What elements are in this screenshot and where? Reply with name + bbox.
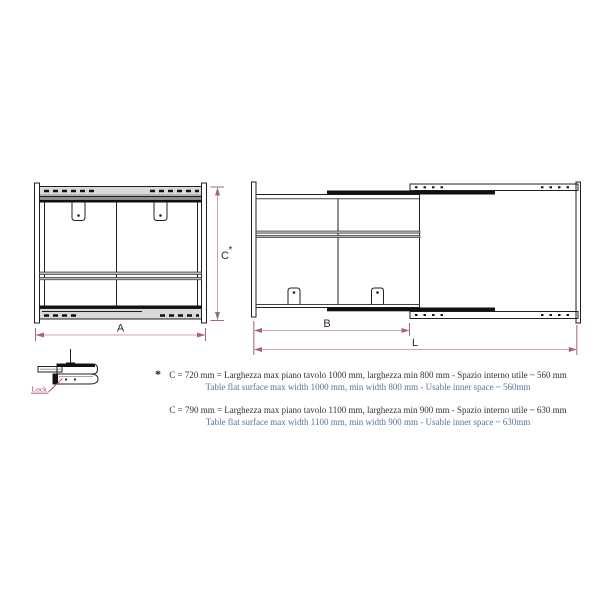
technical-drawing: A C * [0,0,600,600]
closed-left-end-bar [35,183,40,323]
closed-mount-bracket-left [72,203,85,221]
lock-lower-profile [53,374,98,384]
extended-middle-slide [327,186,495,312]
dim-label-B: B [323,318,330,330]
extended-mount-bracket-left [288,288,300,305]
extended-mount-bracket-right [372,288,384,305]
extended-outer-rail [410,182,581,323]
drawing-canvas: A C * [0,0,600,600]
dim-label-C-star: * [229,245,233,256]
lock-upper-profile [38,363,98,375]
dim-label-L: L [412,337,418,349]
closed-view: A C * [35,183,233,341]
dimension-L: L [254,325,577,355]
extended-inner-carriage [256,195,420,308]
closed-mount-bracket-right [154,203,167,221]
note-1-english: Table flat surface max width 1000 mm, mi… [150,381,586,393]
note-block-2: C = 790 mm = Larghezza max piano tavolo … [150,404,586,428]
extended-view: B L [252,182,581,355]
extended-left-end-bar [252,182,257,317]
dimension-C: C * [211,187,233,321]
note-1-italian: C = 720 mm = Larghezza max piano tavolo … [150,369,586,381]
closed-right-end-bar [202,183,207,323]
dimension-A: A [36,323,206,342]
note-2-italian: C = 790 mm = Larghezza max piano tavolo … [150,404,586,416]
note-block-1: C = 720 mm = Larghezza max piano tavolo … [150,369,586,393]
closed-inner-frame [40,203,202,306]
closed-bottom-rail [40,306,202,320]
lock-label: Lock [32,385,48,394]
lock-detail: Lock [31,349,98,394]
note-2-english: Table flat surface max width 1100 mm, mi… [150,416,586,428]
dim-label-A: A [117,323,125,335]
closed-top-rail [40,187,202,203]
